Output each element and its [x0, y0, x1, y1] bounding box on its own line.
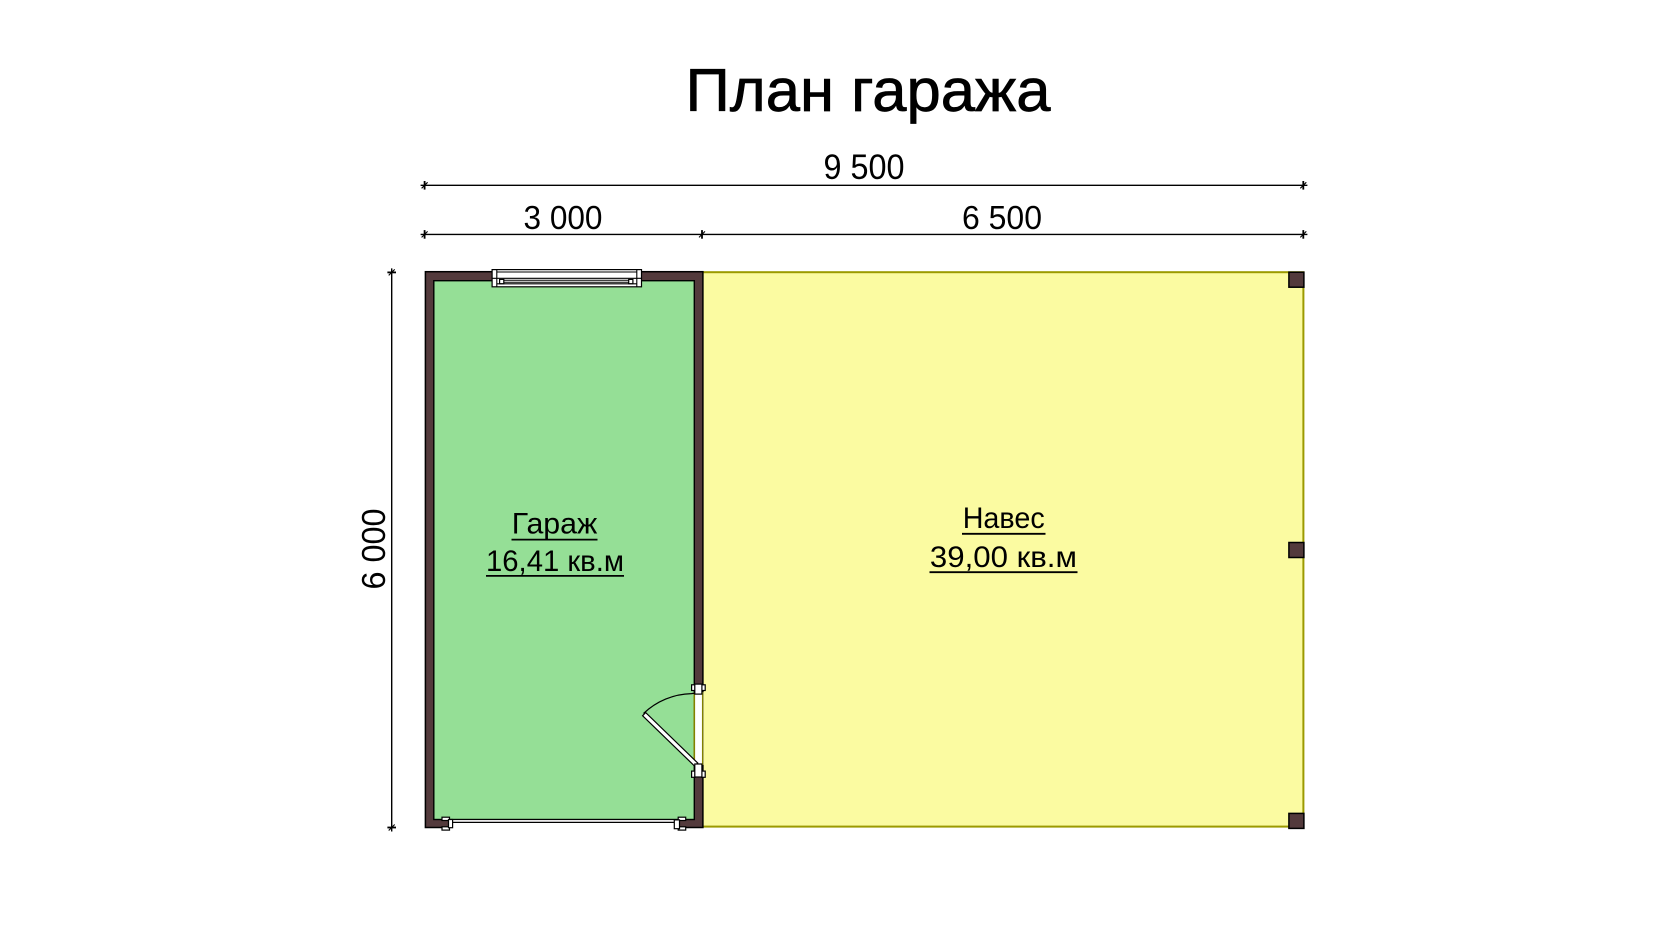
svg-text:9 500: 9 500 [824, 148, 905, 187]
svg-text:Гараж: Гараж [512, 508, 598, 541]
svg-text:6 500: 6 500 [962, 200, 1042, 237]
svg-text:39,00 кв.м: 39,00 кв.м [930, 541, 1077, 574]
svg-text:3 000: 3 000 [524, 200, 603, 237]
svg-text:6 000: 6 000 [356, 509, 393, 590]
svg-text:Навес: Навес [963, 502, 1045, 535]
svg-text:План гаража: План гаража [686, 57, 1052, 124]
svg-text:16,41 кв.м: 16,41 кв.м [486, 545, 624, 578]
